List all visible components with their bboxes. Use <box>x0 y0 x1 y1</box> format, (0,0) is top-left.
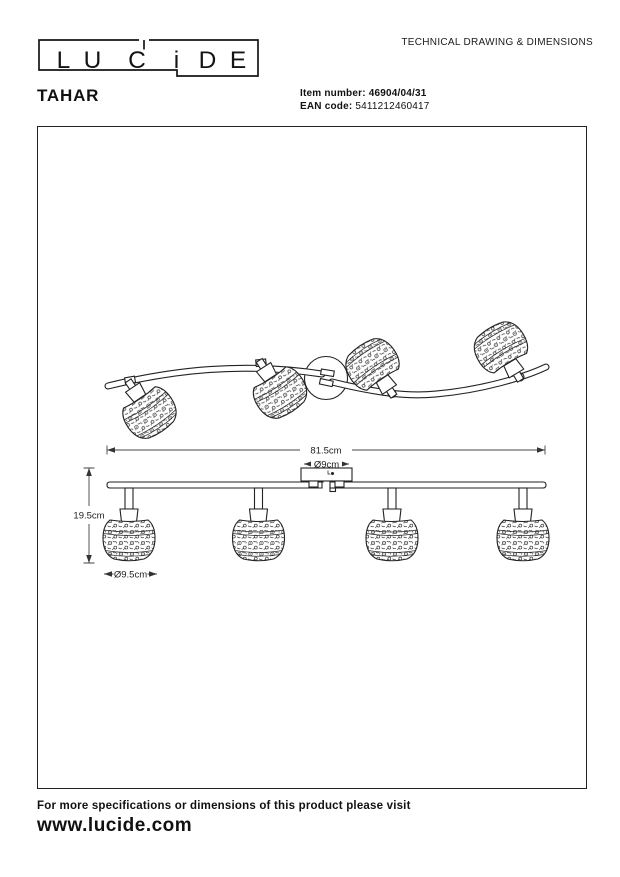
mount-bar-right <box>330 482 546 488</box>
bar-connector-tab <box>330 488 336 492</box>
document-title: TECHNICAL DRAWING & DIMENSIONS <box>401 37 593 48</box>
website-url: www.lucide.com <box>37 815 192 837</box>
dimension-height: 19.5cm <box>73 468 104 563</box>
spotlight-front-4 <box>497 488 549 561</box>
ceiling-canopy <box>301 468 352 481</box>
item-number-value: 46904/04/31 <box>369 88 427 99</box>
spotlight-front-3 <box>366 488 418 561</box>
ean-label: EAN code: <box>300 101 352 112</box>
dimension-shade-diameter: Ø9.5cm <box>104 570 157 581</box>
mount-bar-left <box>107 482 322 488</box>
logo-letter: C <box>128 47 146 74</box>
spotlight-perspective-3 <box>338 331 415 410</box>
spotlight-front-2 <box>233 488 285 561</box>
spotlight-perspective-2 <box>237 346 314 425</box>
product-identifiers: Item number: 46904/04/31 EAN code: 54112… <box>300 87 430 113</box>
dim-bar-length-label: 81.5cm <box>310 446 341 457</box>
canopy-foot <box>335 481 344 487</box>
front-view: 81.5cm Ø9cm <box>73 446 549 581</box>
logo-letter: D <box>199 47 217 74</box>
item-number-row: Item number: 46904/04/31 <box>300 87 430 100</box>
ceiling-canopy-perspective <box>305 357 348 400</box>
footer-note: For more specifications or dimensions of… <box>37 800 411 812</box>
item-number-label: Item number: <box>300 88 366 99</box>
technical-drawing: 81.5cm Ø9cm <box>38 127 586 788</box>
ean-row: EAN code: 5411212460417 <box>300 100 430 113</box>
logo-letter: E <box>230 47 246 74</box>
logo-letter: L <box>57 47 71 74</box>
canopy-foot <box>309 481 318 487</box>
logo-letter: U <box>84 47 102 74</box>
spotlight-front-1 <box>103 488 155 561</box>
lucide-logo: L U C i D E <box>36 36 264 82</box>
perspective-view <box>107 315 546 446</box>
logo-letter: i <box>174 47 179 74</box>
page: L U C i D E TECHNICAL DRAWING & DIMENSIO… <box>0 0 620 877</box>
drawing-frame: 81.5cm Ø9cm <box>37 126 587 789</box>
product-name: TAHAR <box>37 86 99 106</box>
dimension-bar-length: 81.5cm <box>107 446 545 457</box>
logo-frame <box>39 40 258 76</box>
dim-height-label: 19.5cm <box>73 511 104 522</box>
ean-value: 5411212460417 <box>355 101 429 112</box>
dim-shade-diameter-label: Ø9.5cm <box>114 570 147 581</box>
canopy-screw <box>331 472 334 475</box>
